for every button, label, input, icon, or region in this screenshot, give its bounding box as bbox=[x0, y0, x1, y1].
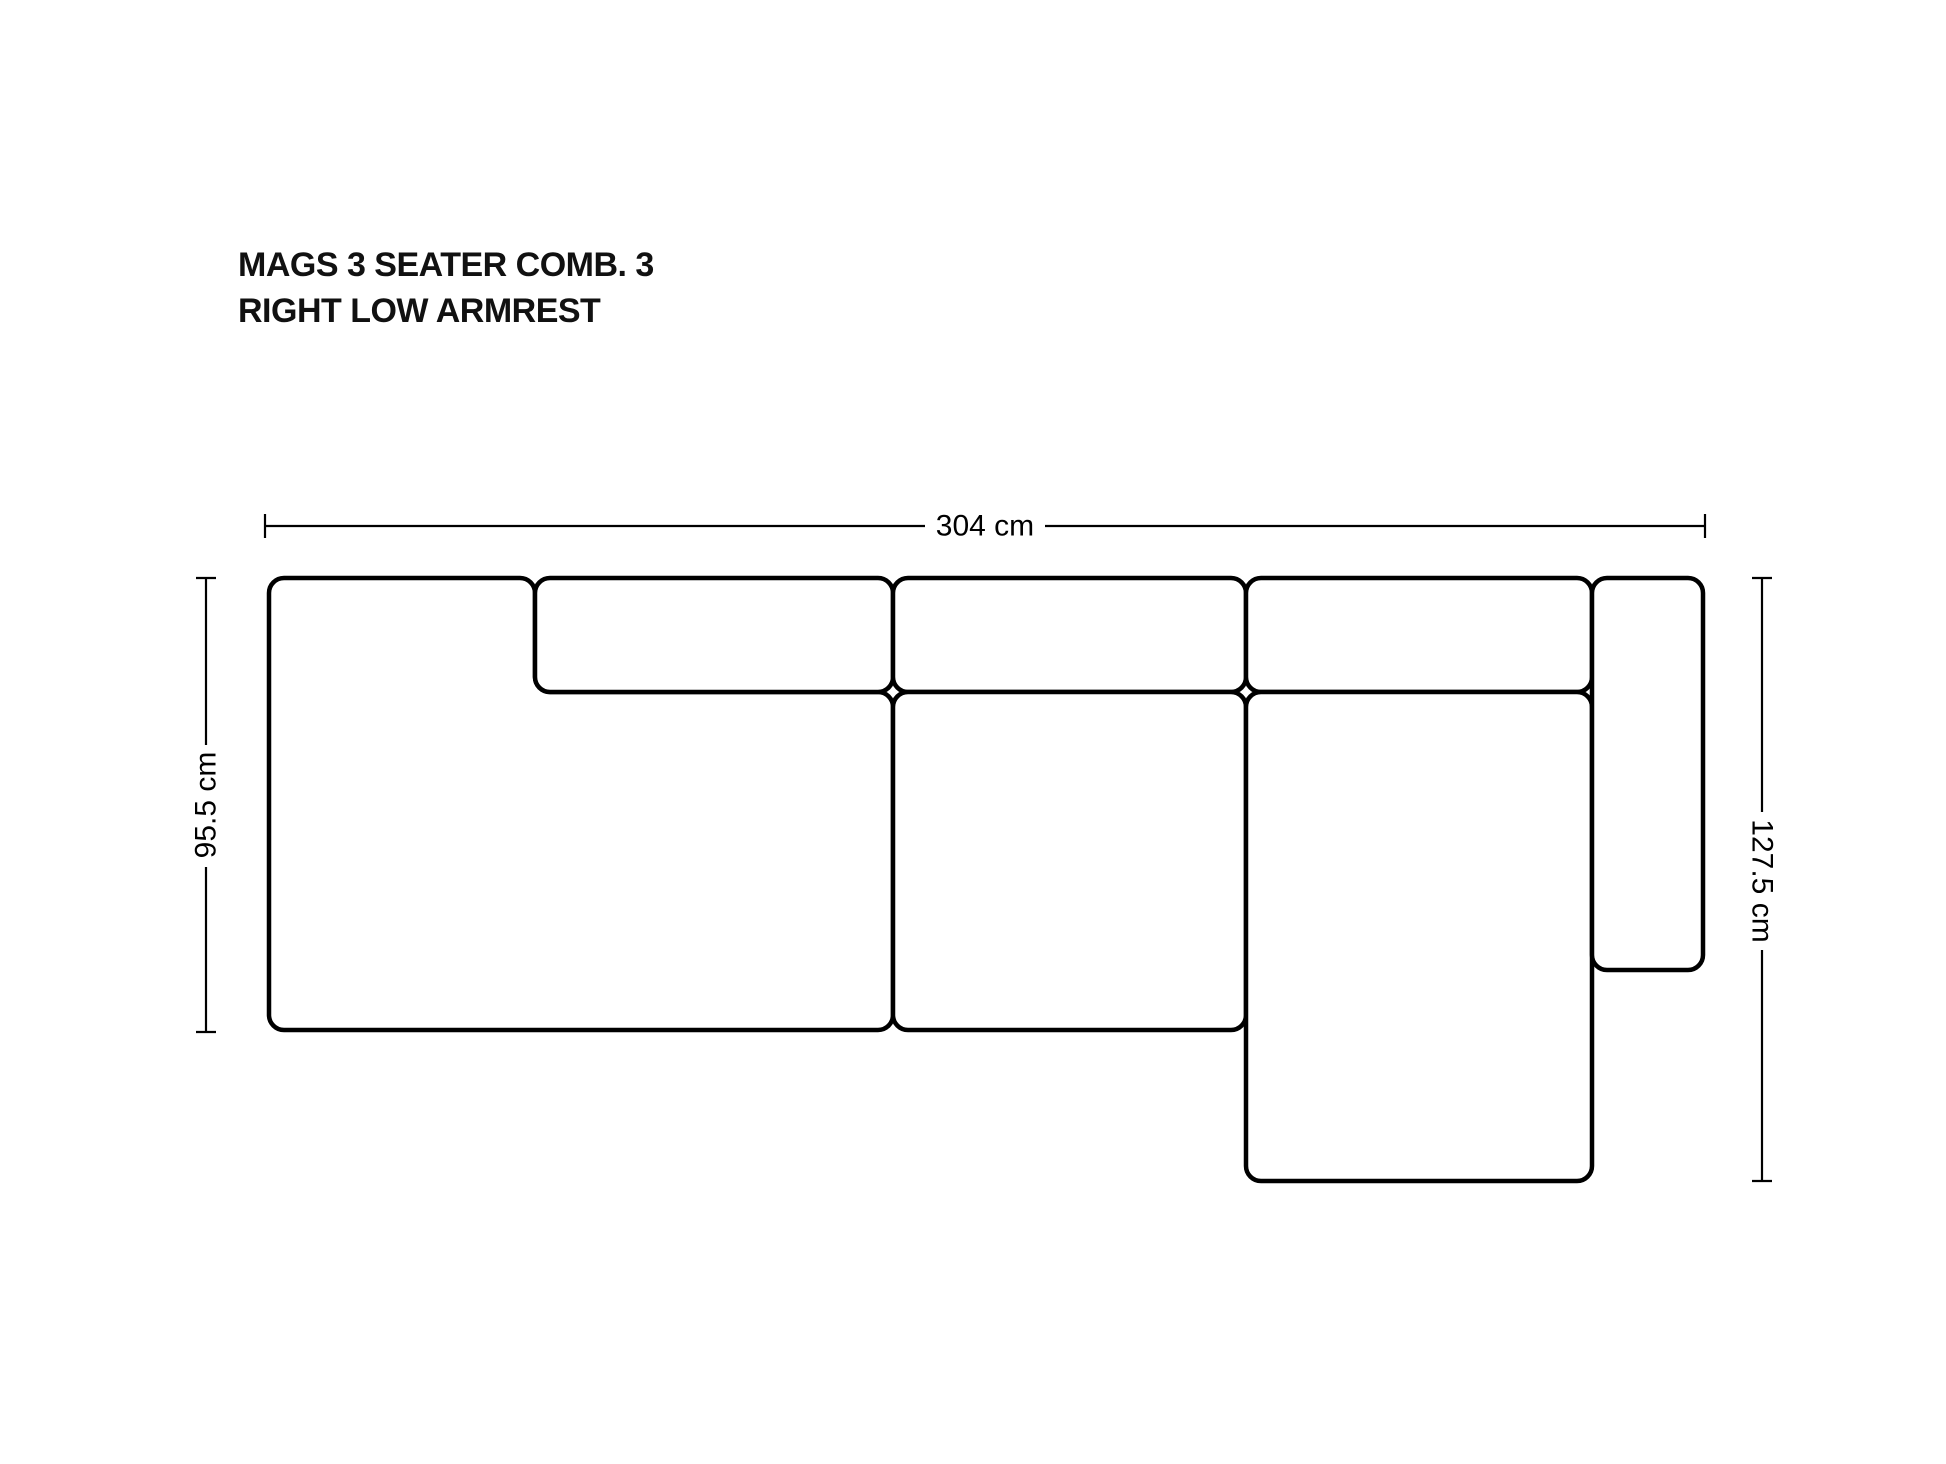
module-seat-middle bbox=[893, 692, 1246, 1030]
width-dimension: 304 cm bbox=[265, 506, 1705, 546]
sofa-modules bbox=[269, 578, 1703, 1181]
module-armrest-low-right bbox=[1592, 578, 1703, 970]
sofa-diagram: 304 cm 95.5 cm 127.5 cm bbox=[0, 0, 1946, 1464]
left-depth-dimension: 95.5 cm bbox=[186, 578, 226, 1032]
module-chaise-seat bbox=[1246, 692, 1592, 1181]
right-depth-dimension: 127.5 cm bbox=[1742, 578, 1782, 1181]
module-back-cushion-middle bbox=[893, 578, 1246, 692]
left-depth-dimension-label: 95.5 cm bbox=[190, 752, 223, 859]
module-back-cushion-right bbox=[1246, 578, 1592, 692]
page-root: MAGS 3 SEATER COMB. 3 RIGHT LOW ARMREST … bbox=[0, 0, 1946, 1464]
module-back-cushion-left bbox=[535, 578, 893, 692]
right-depth-dimension-label: 127.5 cm bbox=[1746, 819, 1779, 942]
width-dimension-label: 304 cm bbox=[936, 510, 1034, 543]
